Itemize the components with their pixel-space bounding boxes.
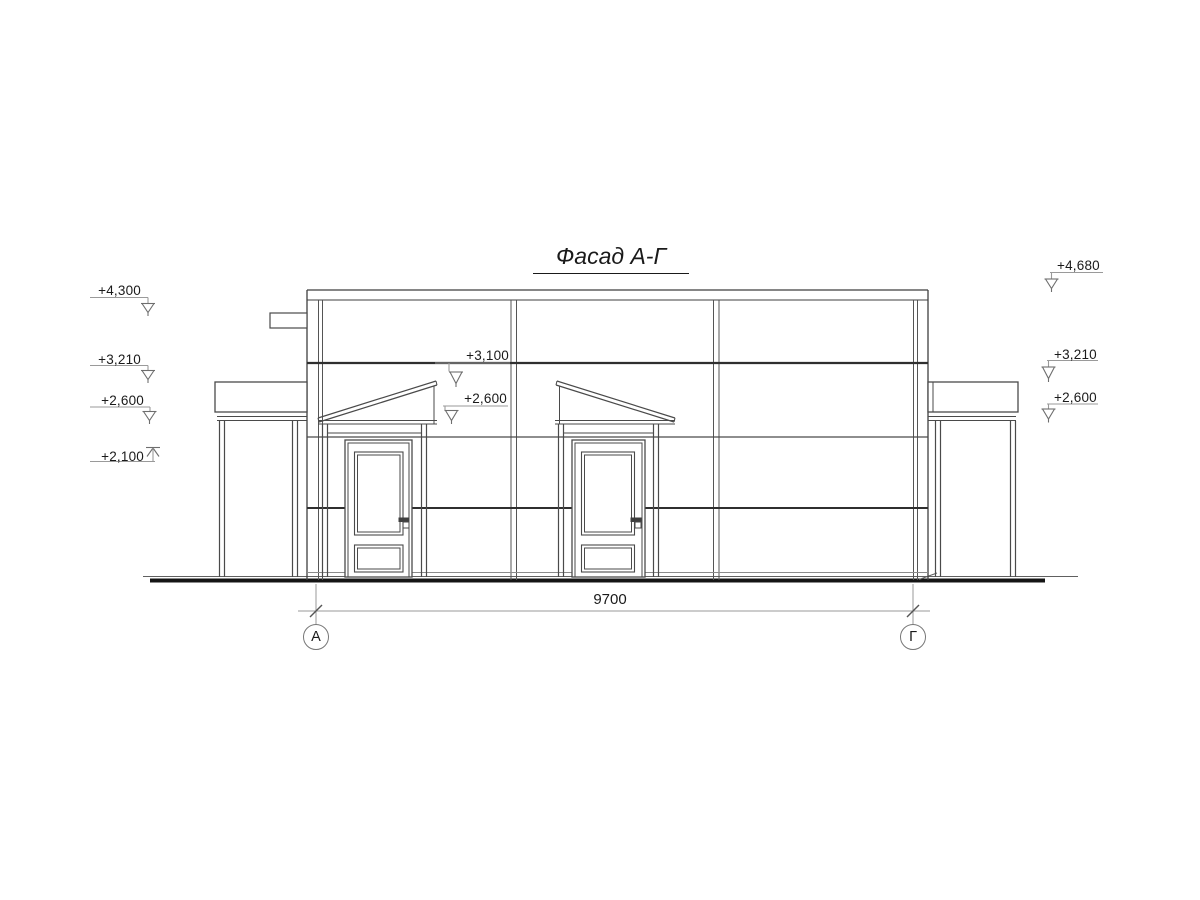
facade-drawing: Фасад А-Г +4,300 +3,210 +2,600 +2,100 +3… [0, 0, 1200, 900]
elevation-arrow-down-icon [1042, 361, 1099, 383]
elevation-label: +2,600 [1054, 390, 1114, 405]
drawing-title: Фасад А-Г [533, 243, 689, 274]
elevation-label: +4,680 [1057, 258, 1117, 273]
left-porch [215, 382, 307, 577]
dimension-value: 9700 [570, 591, 650, 608]
elevation-label: +2,600 [86, 393, 144, 408]
axis-label-g: Г [899, 629, 927, 645]
elevation-label: +2,100 [86, 449, 144, 464]
elevation-label: +3,100 [449, 348, 509, 363]
right-porch [928, 382, 1018, 577]
left-door [345, 440, 412, 577]
middle-door [572, 440, 645, 577]
elevation-label: +3,210 [1054, 347, 1114, 362]
left-porch-fascia [215, 382, 307, 412]
left-wall-box [270, 313, 307, 328]
elevation-arrow-down-icon [1042, 404, 1099, 423]
elevation-arrow-down-icon [90, 366, 155, 384]
axis-label-a: А [302, 629, 330, 645]
elevation-arrow-down-icon [90, 407, 157, 424]
elevation-label: +4,300 [83, 283, 141, 298]
elevation-arrow-down-icon [435, 363, 510, 387]
elevation-arrow-down-icon [1045, 273, 1104, 293]
drawing-linework [0, 0, 1200, 900]
elevation-label: +3,210 [83, 352, 141, 367]
elevation-arrow-down-icon [443, 406, 508, 424]
elevation-label: +2,600 [447, 391, 507, 406]
right-porch-fascia [928, 382, 1018, 412]
elevation-arrow-down-icon [90, 298, 155, 317]
